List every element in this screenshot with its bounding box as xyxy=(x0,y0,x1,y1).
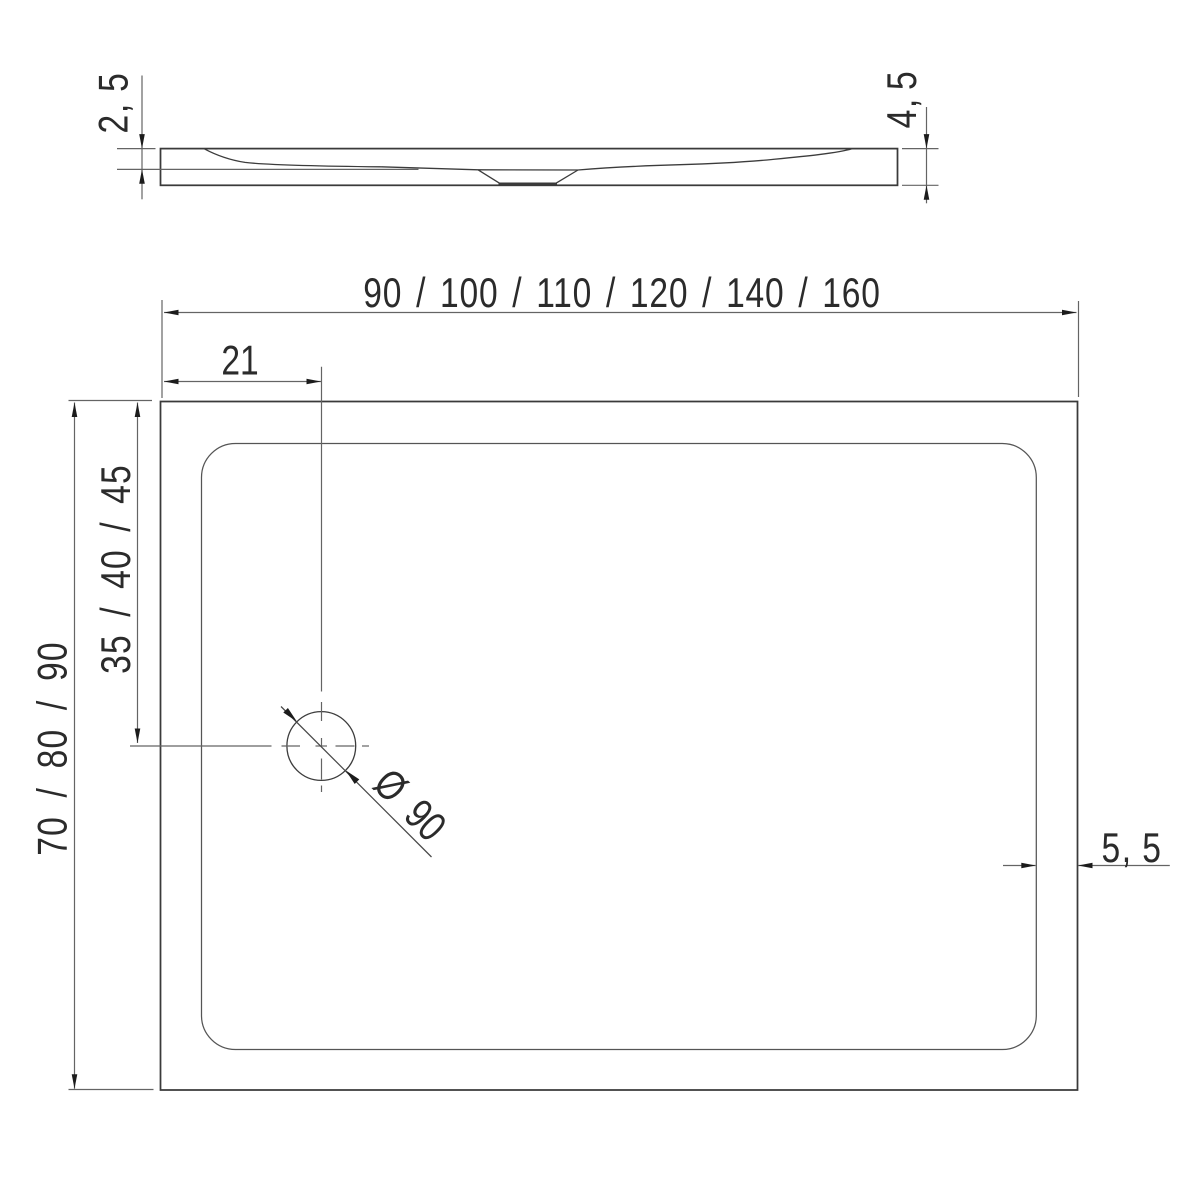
svg-text:2,5: 2,5 xyxy=(91,72,137,134)
svg-text:90 / 100 / 110 / 120 / 140 / 1: 90 / 100 / 110 / 120 / 140 / 160 xyxy=(363,271,880,317)
svg-text:4,5: 4,5 xyxy=(880,70,926,129)
svg-text:70 / 80 / 90: 70 / 80 / 90 xyxy=(30,641,76,855)
svg-text:5,5: 5,5 xyxy=(1101,826,1162,872)
svg-text:21: 21 xyxy=(221,338,258,384)
svg-text:35 / 40 / 45: 35 / 40 / 45 xyxy=(94,464,140,674)
